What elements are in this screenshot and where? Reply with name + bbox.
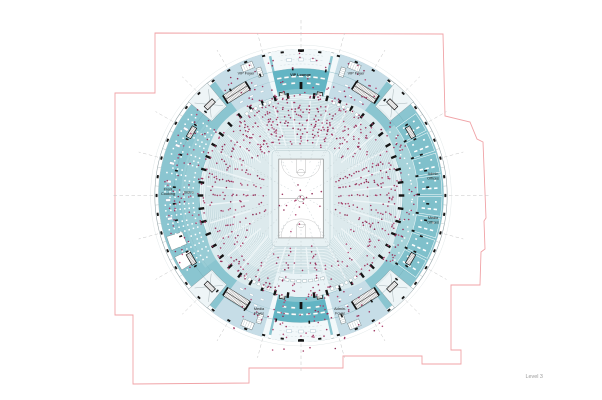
svg-text:Media: Media: [428, 216, 439, 220]
svg-text:Offices: Offices: [427, 221, 439, 225]
svg-text:Front: Front: [164, 188, 174, 192]
svg-text:Cooking: Cooking: [161, 192, 175, 196]
svg-text:Offices: Offices: [427, 177, 439, 181]
svg-text:Bistro: Bistro: [184, 191, 194, 195]
svg-text:VIP Foyer: VIP Foyer: [238, 72, 256, 76]
svg-text:Admin.: Admin.: [334, 307, 346, 311]
svg-text:VIP Foyer: VIP Foyer: [348, 72, 366, 76]
svg-text:Foyer: Foyer: [335, 312, 345, 316]
svg-text:VIP Lounge: VIP Lounge: [290, 73, 311, 77]
svg-text:Level 3: Level 3: [526, 374, 543, 380]
svg-text:Media: Media: [254, 307, 265, 311]
svg-text:Foyer: Foyer: [254, 312, 264, 316]
svg-text:Admin: Admin: [428, 172, 439, 176]
